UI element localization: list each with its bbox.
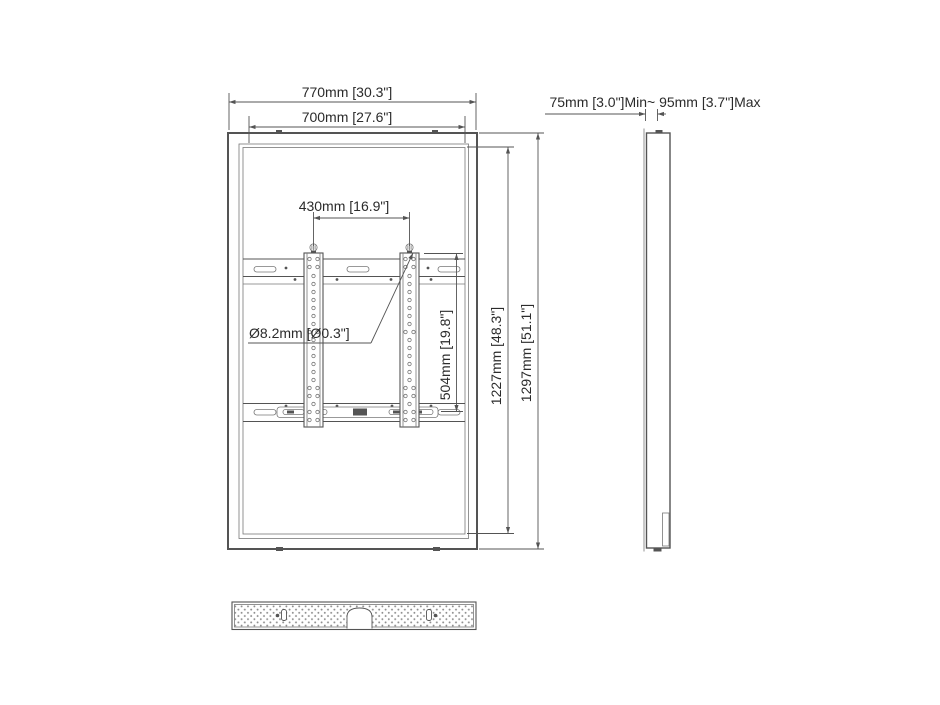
frame-screw-bottom-right	[433, 547, 440, 551]
vesa-bracket-right	[400, 244, 419, 427]
rail-slot	[347, 267, 369, 273]
mount-dimension-drawing: 770mm [30.3"] 700mm [27.6"] 430mm [16.9"…	[0, 0, 940, 705]
frame-screw-top-left	[276, 130, 282, 134]
dim-bracket-height-label: 504mm [19.8"]	[437, 310, 453, 401]
bottom-view	[232, 602, 476, 630]
side-view	[644, 129, 670, 552]
cable-arch-cutout	[347, 608, 372, 629]
dim-outer-width-label: 770mm [30.3"]	[302, 84, 393, 100]
dim-inner-width-label: 700mm [27.6"]	[302, 109, 393, 125]
bottom-slot-left	[282, 610, 287, 621]
dim-bracket-spacing-label: 430mm [16.9"]	[299, 198, 390, 214]
dim-outer-height-label: 1297mm [51.1"]	[518, 304, 534, 402]
side-top-marker	[656, 130, 663, 133]
bottom-slot-right	[427, 610, 432, 621]
side-foot	[654, 548, 662, 552]
frame-screw-bottom-left	[276, 547, 283, 551]
bottom-screw-right	[434, 614, 438, 618]
dim-depth-range-label: 75mm [3.0"]Min~ 95mm [3.7"]Max	[549, 94, 760, 110]
dimension-depth-range: 75mm [3.0"]Min~ 95mm [3.7"]Max	[545, 94, 761, 121]
frame-screw-top-right	[432, 130, 438, 134]
bottom-screw-left	[276, 614, 280, 618]
rail-slot	[254, 410, 276, 416]
technical-drawing-page: 770mm [30.3"] 700mm [27.6"] 430mm [16.9"…	[0, 0, 940, 705]
dim-inner-height-label: 1227mm [48.3"]	[488, 307, 504, 405]
dim-hole-diameter-label: Ø8.2mm [Ø0.3"]	[249, 325, 350, 341]
rail-slot	[254, 267, 276, 273]
side-profile	[647, 133, 671, 548]
